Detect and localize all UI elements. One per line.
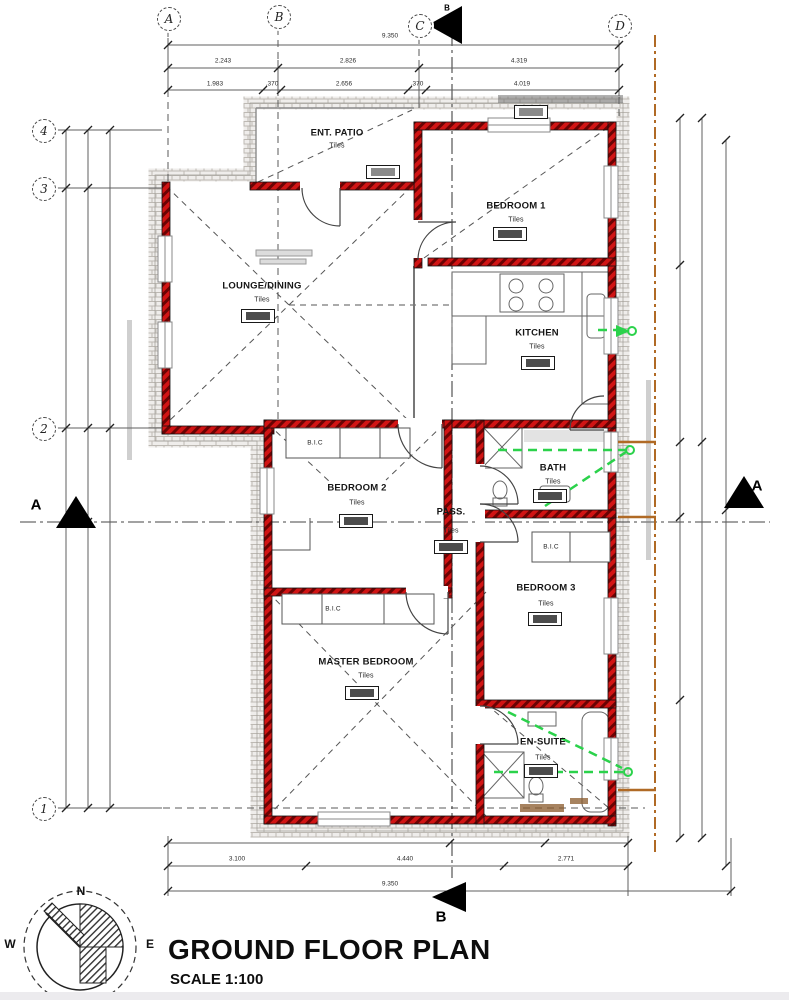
room-floor-ent-patio: Tiles <box>329 143 345 150</box>
room-floor-pass: Tiles <box>443 528 459 535</box>
dim-top2-5: 4.019 <box>514 81 530 88</box>
section-b-bottom-triangle <box>432 882 466 912</box>
section-a-left-label: A <box>31 497 42 514</box>
dim-top2-3: 2.656 <box>336 81 352 88</box>
walls <box>162 122 616 826</box>
section-b-top-label: B <box>444 4 450 13</box>
room-floor-ensuite: Tiles <box>535 755 551 762</box>
dim-bottom-3: 2.771 <box>558 856 574 863</box>
room-floor-master-bedroom: Tiles <box>358 673 374 680</box>
area-box-pass <box>434 540 468 554</box>
bottom-strip <box>0 992 789 1000</box>
grid-row-1: 1 <box>32 797 56 821</box>
bic-label-master: B.I.C <box>325 606 340 613</box>
grid-column-b: B <box>267 5 291 29</box>
area-box-ensuite <box>524 764 558 778</box>
grid-column-c: C <box>408 14 432 38</box>
dim-top2-2: .370 <box>266 81 279 88</box>
dim-top-cd: 4.319 <box>511 58 527 65</box>
dim-top-overall: 9.350 <box>382 33 398 40</box>
dim-top2-4: .370 <box>411 81 424 88</box>
compass-west-label: W <box>4 937 15 951</box>
area-box-patio-tag <box>366 165 400 179</box>
grid-column-d: D <box>608 14 632 38</box>
section-a-left-triangle <box>56 496 96 528</box>
room-floor-bath: Tiles <box>545 479 561 486</box>
page-title: GROUND FLOOR PLAN <box>168 934 491 966</box>
room-label-ent-patio: ENT. PATIO <box>311 128 364 139</box>
grid-row-2: 2 <box>32 417 56 441</box>
room-label-bath: BATH <box>540 463 566 474</box>
area-box-bedroom3 <box>528 612 562 626</box>
area-box-kitchen <box>521 356 555 370</box>
dim-bottom-1: 3.100 <box>229 856 245 863</box>
grid-column-a: A <box>157 7 181 31</box>
grid-row-3: 3 <box>32 177 56 201</box>
dim-top-ab: 2.243 <box>215 58 231 65</box>
area-box-lounge <box>241 309 275 323</box>
room-label-ensuite: EN-SUITE <box>520 737 566 748</box>
room-floor-bedroom3: Tiles <box>538 601 554 608</box>
area-box-bedroom1 <box>493 227 527 241</box>
room-label-lounge: LOUNGE/DINING <box>222 281 301 292</box>
room-label-bedroom3: BEDROOM 3 <box>516 583 575 594</box>
room-floor-bedroom1: Tiles <box>508 217 524 224</box>
compass-east-label: E <box>146 937 154 951</box>
area-box-bedroom2 <box>339 514 373 528</box>
room-label-master-bedroom: MASTER BEDROOM <box>318 657 413 668</box>
bic-label-bedroom3: B.I.C <box>543 544 558 551</box>
compass-rose <box>24 891 136 1000</box>
wall-tag-box <box>514 105 548 119</box>
room-floor-lounge: Tiles <box>254 297 270 304</box>
room-floor-kitchen: Tiles <box>529 344 545 351</box>
room-label-pass: PASS. <box>437 507 466 518</box>
floor-plan-drawing <box>0 0 789 1000</box>
section-b-bottom-label: B <box>436 909 447 926</box>
scale-label: SCALE 1:100 <box>170 971 263 988</box>
section-triangles <box>56 6 764 912</box>
compass-north-label: N <box>77 884 86 898</box>
dim-bottom-2: 4.440 <box>397 856 413 863</box>
section-a-right-label: A <box>752 478 763 495</box>
floor-plan-sheet: A B C D 4 3 2 1 B B A A ENT. PATIO Tiles… <box>0 0 789 1000</box>
bic-label-bedroom2: B.I.C <box>307 440 322 447</box>
area-box-master <box>345 686 379 700</box>
room-floor-bedroom2: Tiles <box>349 500 365 507</box>
room-label-bedroom2: BEDROOM 2 <box>327 483 386 494</box>
room-label-kitchen: KITCHEN <box>515 328 559 339</box>
room-label-bedroom1: BEDROOM 1 <box>486 201 545 212</box>
grid-row-4: 4 <box>32 119 56 143</box>
dim-top-bc: 2.826 <box>340 58 356 65</box>
area-box-bath <box>533 489 567 503</box>
dim-bottom-overall: 9.350 <box>382 881 398 888</box>
dim-top2-1: 1.983 <box>207 81 223 88</box>
